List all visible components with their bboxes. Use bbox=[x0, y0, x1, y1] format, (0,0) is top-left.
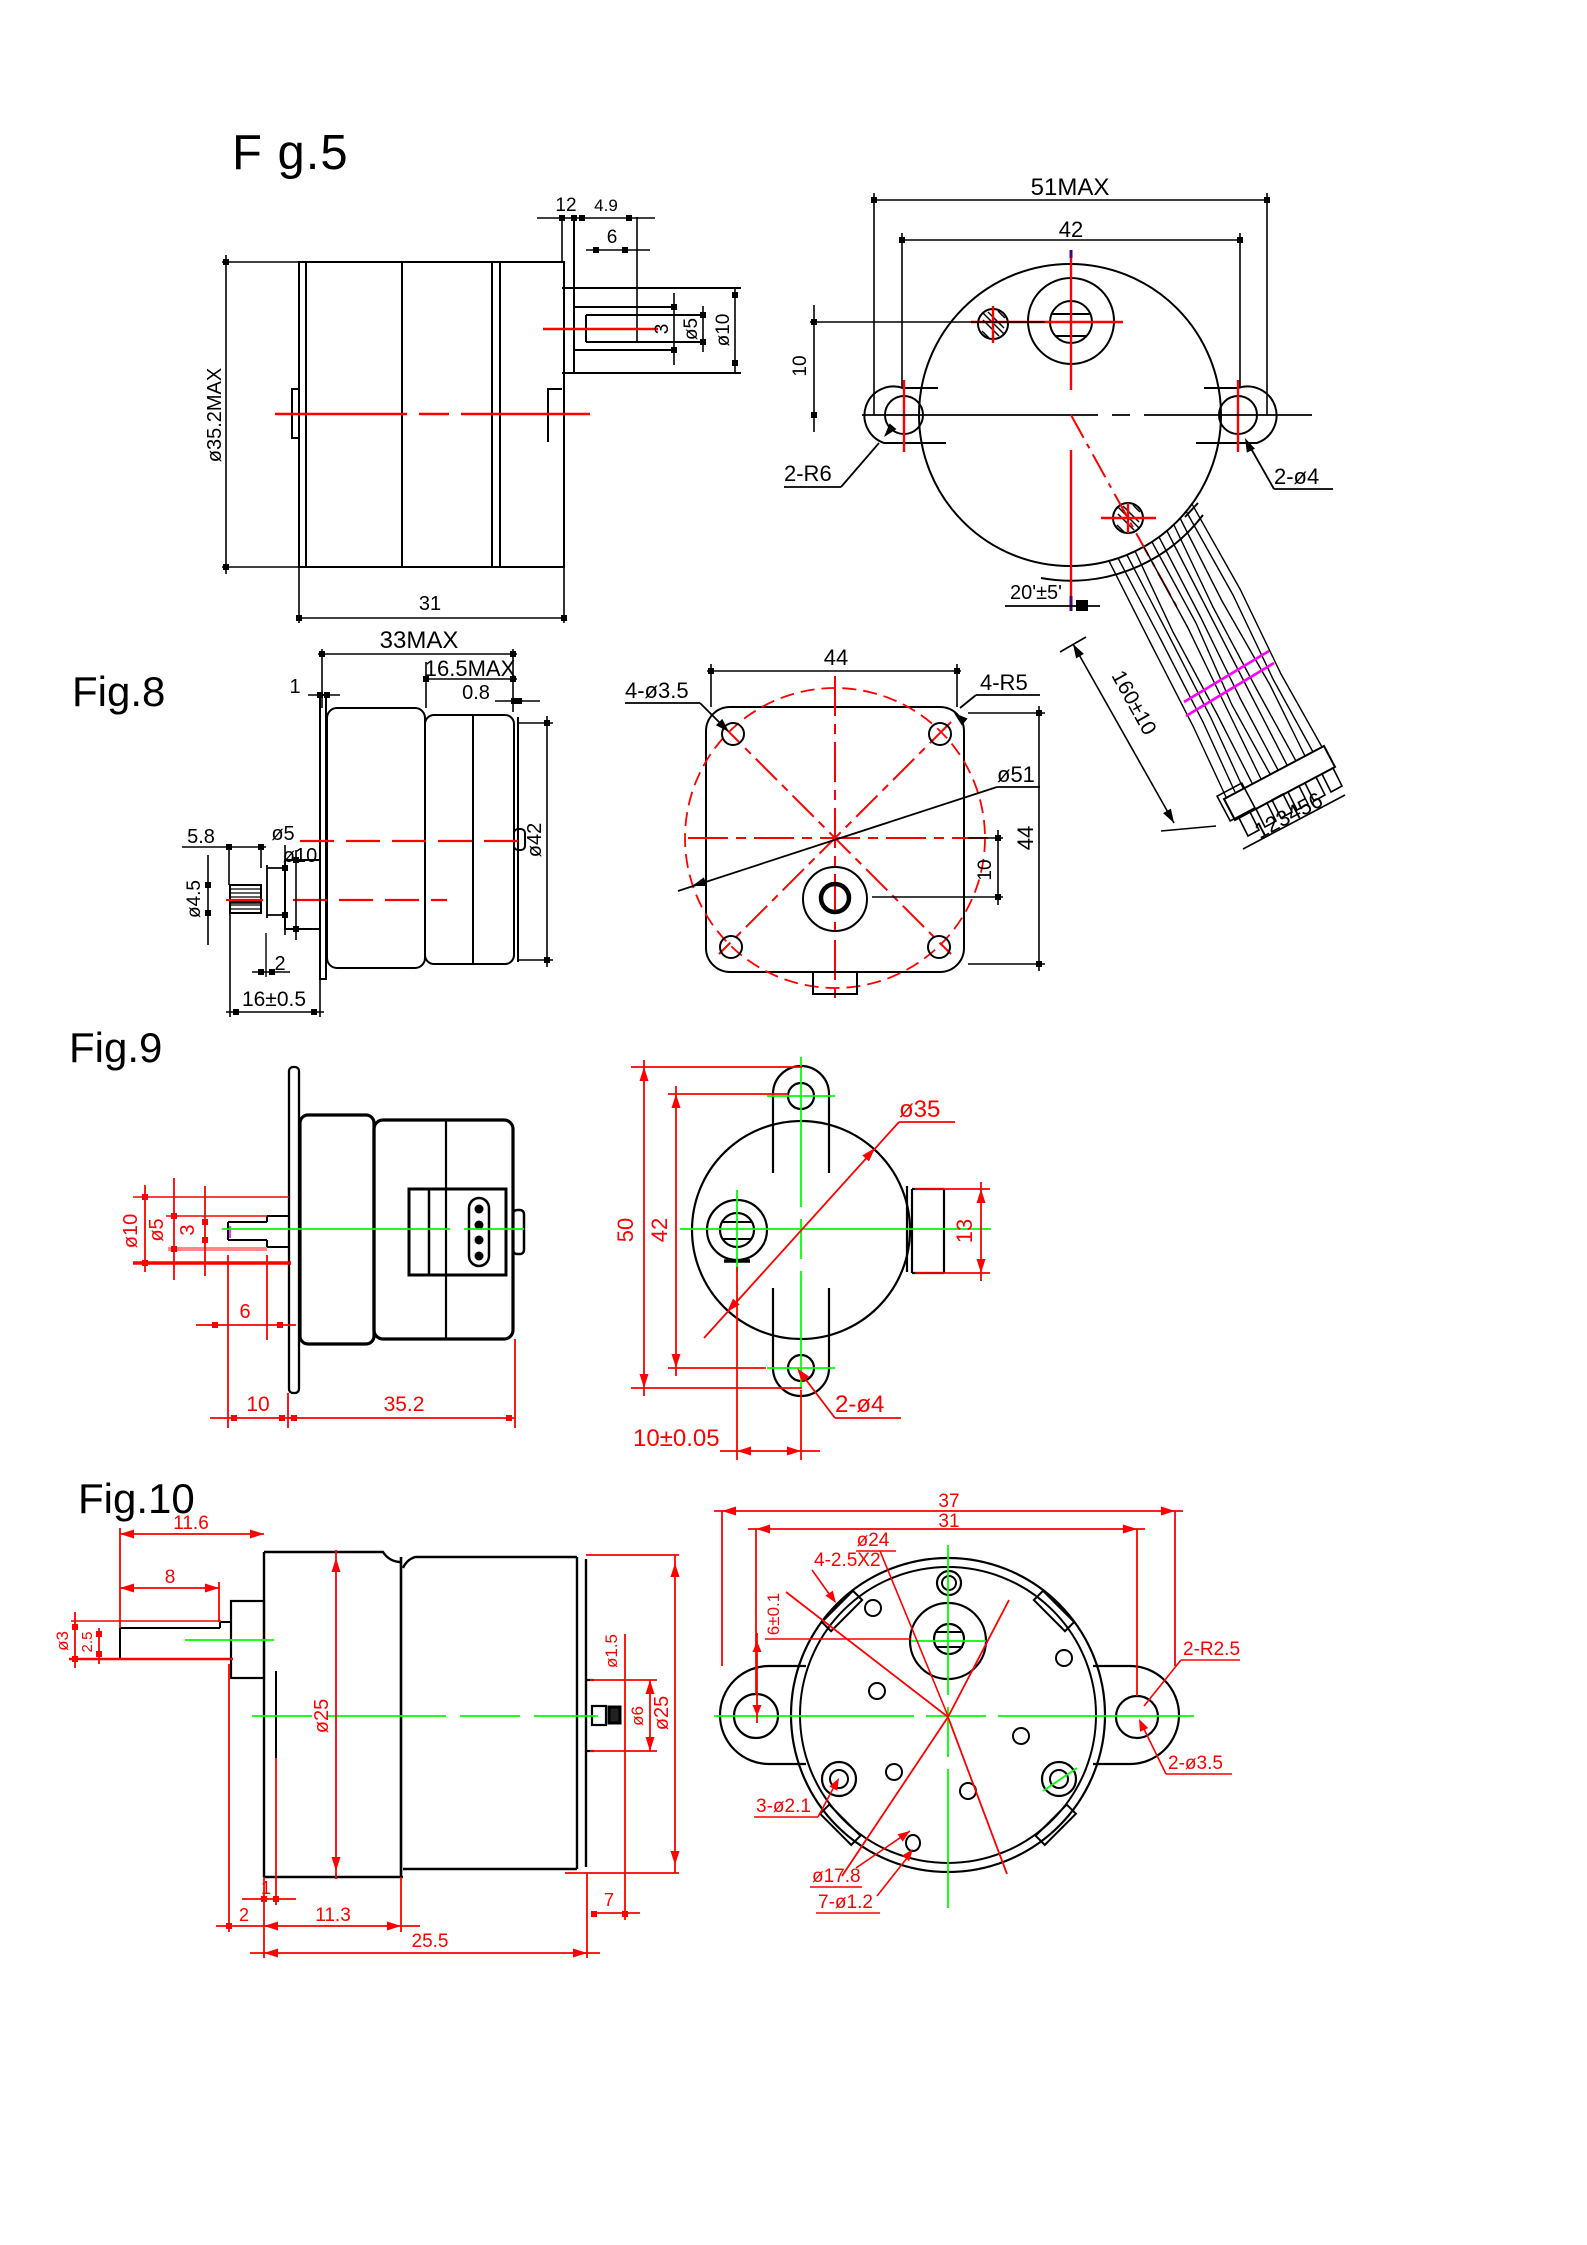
svg-text:10: 10 bbox=[790, 355, 811, 376]
svg-text:7-ø1.2: 7-ø1.2 bbox=[818, 1892, 873, 1913]
svg-text:20'±5': 20'±5' bbox=[1010, 582, 1062, 604]
svg-text:6: 6 bbox=[607, 227, 618, 248]
svg-text:4-ø3.5: 4-ø3.5 bbox=[625, 678, 689, 703]
svg-text:5.8: 5.8 bbox=[187, 826, 215, 848]
svg-text:ø3: ø3 bbox=[53, 1631, 72, 1651]
svg-text:ø6: ø6 bbox=[628, 1706, 647, 1726]
svg-text:50: 50 bbox=[613, 1218, 638, 1242]
svg-text:ø5: ø5 bbox=[681, 318, 702, 340]
svg-text:2-ø4: 2-ø4 bbox=[1274, 464, 1319, 489]
svg-text:ø51: ø51 bbox=[997, 762, 1035, 787]
svg-text:ø42: ø42 bbox=[524, 823, 546, 857]
svg-text:Fig.8: Fig.8 bbox=[72, 668, 165, 715]
svg-text:ø10: ø10 bbox=[283, 845, 317, 867]
svg-text:44: 44 bbox=[1013, 826, 1038, 850]
svg-text:10: 10 bbox=[975, 859, 996, 880]
svg-text:8: 8 bbox=[165, 1567, 176, 1588]
svg-text:ø25: ø25 bbox=[651, 1696, 673, 1730]
svg-text:ø10: ø10 bbox=[713, 314, 734, 347]
svg-text:ø17.8: ø17.8 bbox=[812, 1866, 861, 1887]
svg-text:ø24: ø24 bbox=[857, 1530, 890, 1551]
svg-text:0.8: 0.8 bbox=[462, 682, 490, 704]
svg-text:6: 6 bbox=[239, 1301, 250, 1323]
svg-text:4-R5: 4-R5 bbox=[980, 670, 1028, 695]
svg-text:33MAX: 33MAX bbox=[380, 627, 459, 654]
svg-text:3-ø2.1: 3-ø2.1 bbox=[756, 1796, 811, 1817]
svg-text:10: 10 bbox=[246, 1393, 269, 1416]
svg-text:1: 1 bbox=[289, 676, 300, 698]
svg-text:31: 31 bbox=[419, 593, 441, 615]
svg-text:3: 3 bbox=[177, 1224, 199, 1235]
svg-text:7: 7 bbox=[604, 1890, 614, 1910]
svg-text:42: 42 bbox=[647, 1218, 672, 1242]
svg-text:2: 2 bbox=[239, 1905, 249, 1925]
svg-text:1: 1 bbox=[261, 1878, 271, 1898]
svg-text:2-R6: 2-R6 bbox=[784, 461, 832, 486]
svg-text:ø10: ø10 bbox=[120, 1214, 142, 1248]
svg-text:11.3: 11.3 bbox=[315, 1905, 351, 1926]
svg-text:10±0.05: 10±0.05 bbox=[633, 1425, 720, 1452]
svg-text:2: 2 bbox=[274, 953, 285, 975]
svg-text:37: 37 bbox=[938, 1491, 959, 1512]
svg-text:11.6: 11.6 bbox=[173, 1513, 209, 1534]
svg-text:25.5: 25.5 bbox=[412, 1931, 449, 1952]
svg-text:31: 31 bbox=[938, 1511, 959, 1532]
svg-text:3: 3 bbox=[652, 324, 673, 335]
svg-text:44: 44 bbox=[824, 645, 848, 670]
svg-text:42: 42 bbox=[1059, 217, 1083, 242]
svg-text:35.2: 35.2 bbox=[384, 1393, 425, 1416]
svg-text:ø35.2MAX: ø35.2MAX bbox=[204, 368, 226, 462]
svg-text:13: 13 bbox=[952, 1219, 977, 1243]
svg-text:51MAX: 51MAX bbox=[1031, 174, 1110, 201]
svg-text:16.5MAX: 16.5MAX bbox=[425, 656, 516, 681]
svg-text:4-2.5X2: 4-2.5X2 bbox=[814, 1550, 881, 1571]
svg-text:2-ø4: 2-ø4 bbox=[835, 1391, 884, 1418]
svg-text:12: 12 bbox=[555, 195, 576, 216]
svg-text:ø5: ø5 bbox=[146, 1218, 168, 1241]
svg-text:ø25: ø25 bbox=[311, 1699, 333, 1733]
svg-text:4.9: 4.9 bbox=[594, 196, 618, 215]
svg-text:2-R2.5: 2-R2.5 bbox=[1183, 1639, 1240, 1660]
svg-text:ø35: ø35 bbox=[899, 1096, 940, 1123]
svg-text:ø5: ø5 bbox=[271, 823, 294, 845]
svg-text:2-ø3.5: 2-ø3.5 bbox=[1168, 1753, 1223, 1774]
svg-text:Fig.9: Fig.9 bbox=[69, 1024, 162, 1071]
svg-text:2.5: 2.5 bbox=[79, 1632, 96, 1653]
svg-text:16±0.5: 16±0.5 bbox=[242, 988, 306, 1011]
svg-text:ø4.5: ø4.5 bbox=[184, 880, 205, 918]
svg-text:6±0.1: 6±0.1 bbox=[764, 1593, 783, 1635]
svg-text:ø1.5: ø1.5 bbox=[602, 1634, 621, 1668]
svg-text:F g.5: F g.5 bbox=[232, 126, 349, 180]
